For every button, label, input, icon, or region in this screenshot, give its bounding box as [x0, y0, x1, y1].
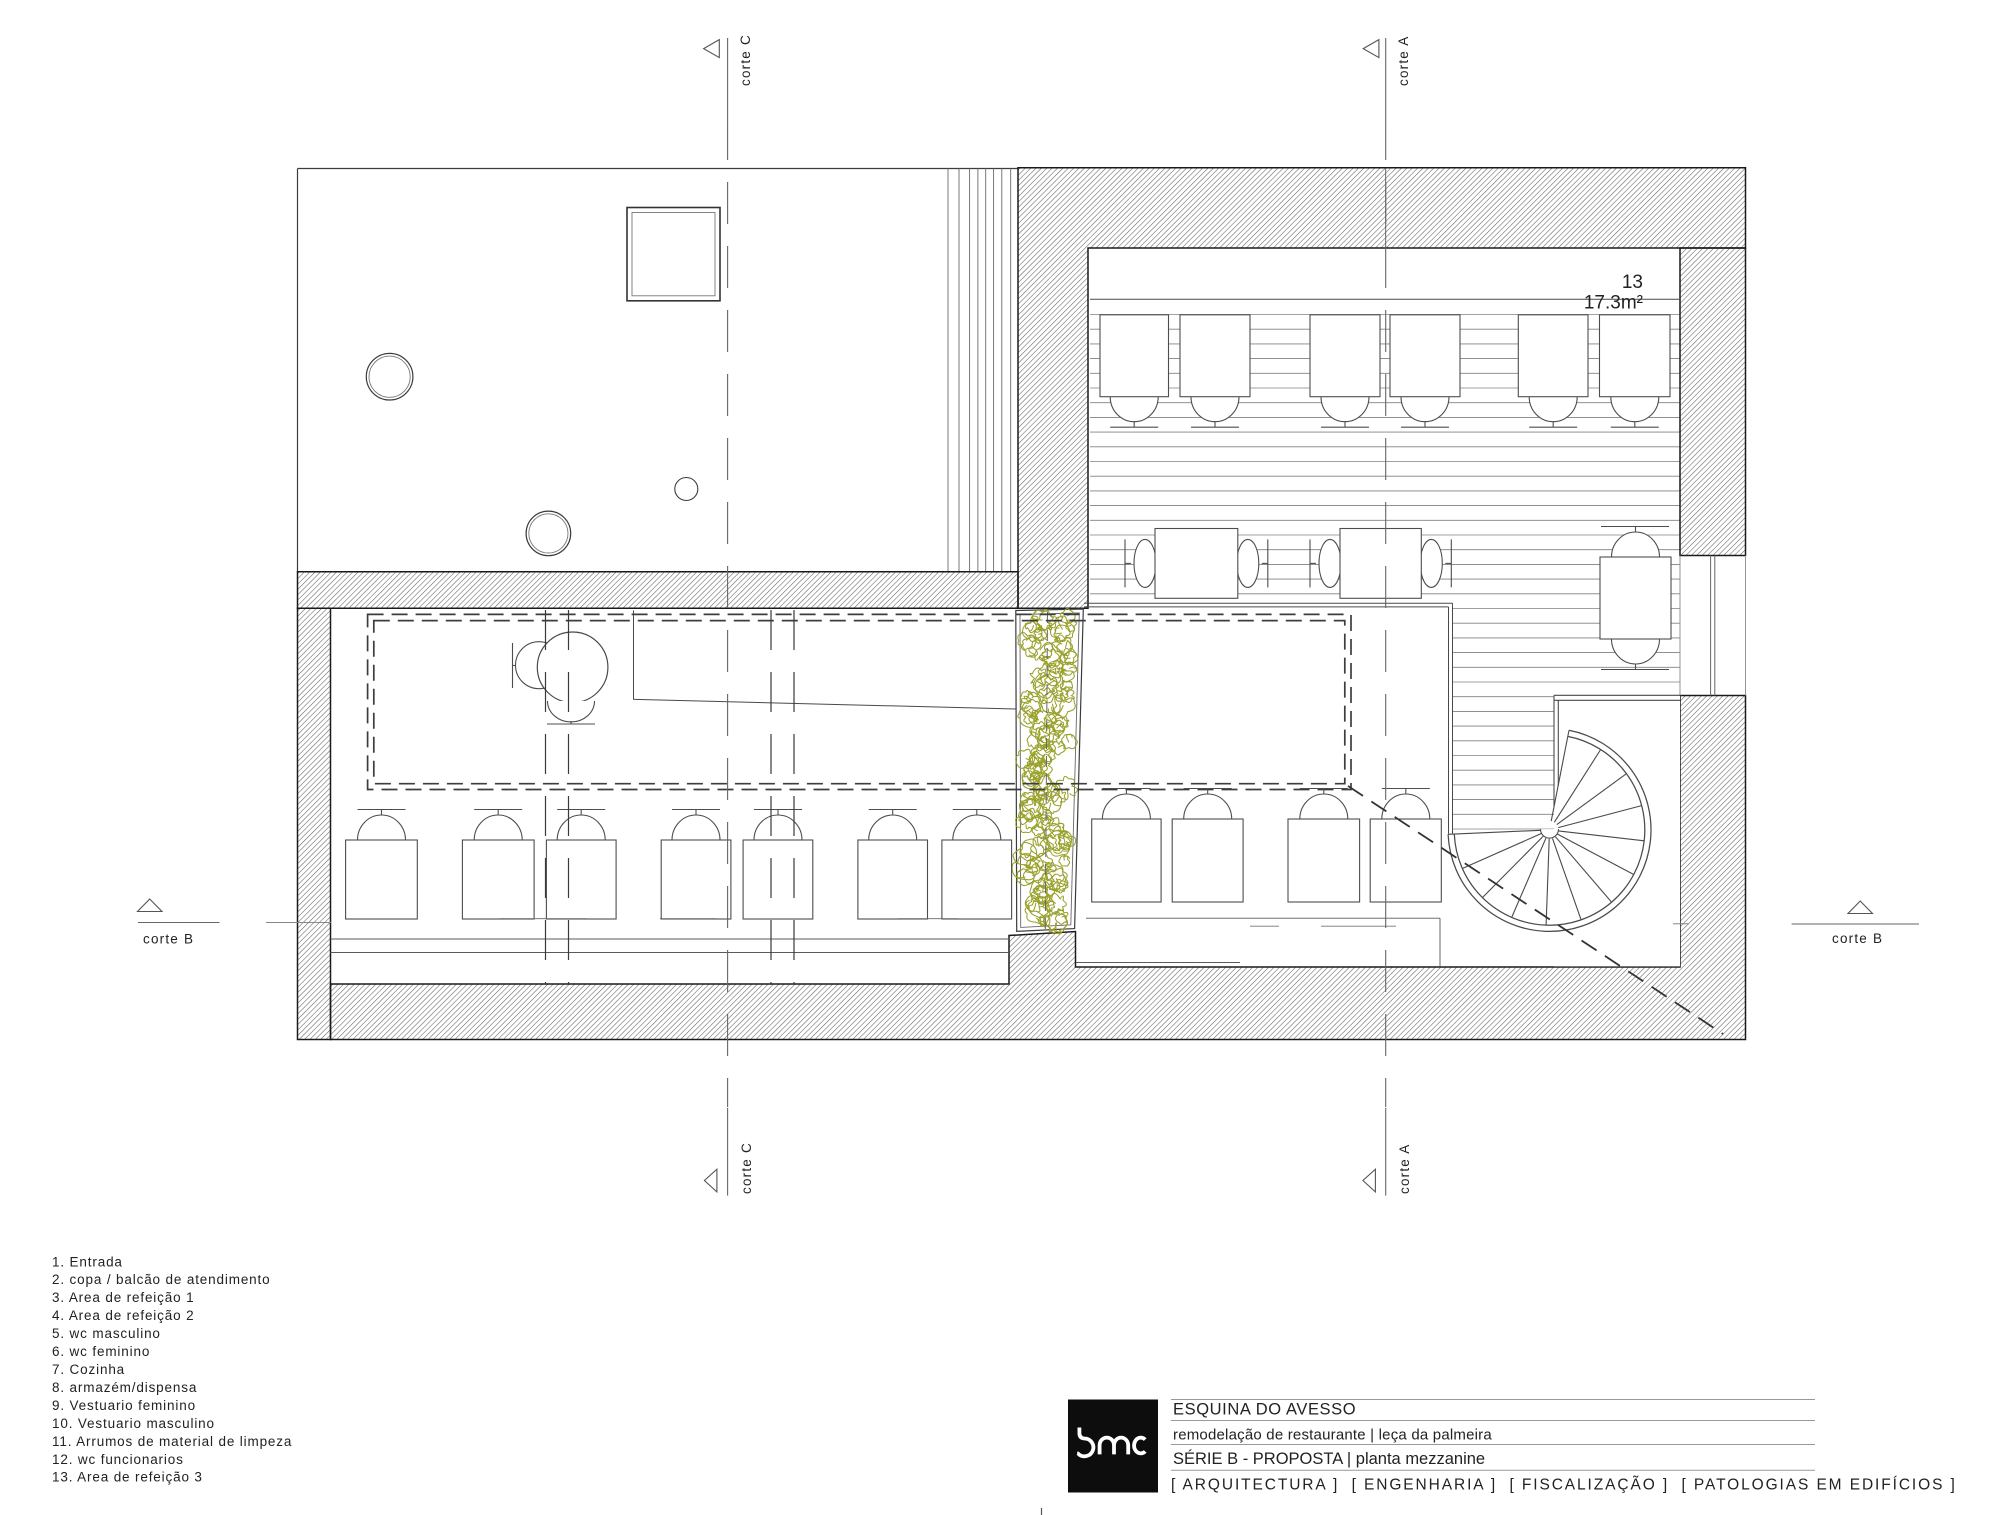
svg-text:7. Cozinha: 7. Cozinha	[52, 1362, 125, 1377]
svg-text:remodelação de restaurante | l: remodelação de restaurante | leça da pal…	[1173, 1427, 1492, 1444]
svg-text:8. armazém/dispensa: 8. armazém/dispensa	[52, 1380, 197, 1395]
svg-text:corte A: corte A	[1396, 36, 1411, 86]
svg-text:corte B: corte B	[143, 932, 194, 947]
svg-text:corte B: corte B	[1832, 931, 1883, 946]
svg-text:4. Area de refeição 2: 4. Area de refeição 2	[52, 1308, 194, 1323]
svg-text:1. Entrada: 1. Entrada	[52, 1254, 123, 1269]
svg-text:9. Vestuario feminino: 9. Vestuario feminino	[52, 1398, 196, 1413]
svg-text:[ ARQUITECTURA ] [ ENGENHARIA: [ ARQUITECTURA ] [ ENGENHARIA ] [ FISCAL…	[1171, 1477, 1957, 1494]
svg-text:13. Area de refeição 3: 13. Area de refeição 3	[52, 1470, 203, 1485]
svg-text:12. wc funcionarios: 12. wc funcionarios	[52, 1452, 184, 1467]
svg-text:6. wc feminino: 6. wc feminino	[52, 1344, 150, 1359]
svg-text:corte C: corte C	[738, 34, 753, 86]
svg-text:5. wc masculino: 5. wc masculino	[52, 1326, 161, 1341]
svg-text:3. Area de refeição 1: 3. Area de refeição 1	[52, 1290, 194, 1305]
svg-text:2. copa / balcão de atendiment: 2. copa / balcão de atendimento	[52, 1272, 271, 1287]
svg-text:17.3m²: 17.3m²	[1584, 293, 1643, 314]
svg-text:ESQUINA DO AVESSO: ESQUINA DO AVESSO	[1173, 1401, 1356, 1419]
svg-text:11. Arrumos de material de lim: 11. Arrumos de material de limpeza	[52, 1434, 292, 1449]
svg-text:corte A: corte A	[1397, 1144, 1412, 1194]
svg-text:corte C: corte C	[739, 1142, 754, 1194]
svg-text:10. Vestuario masculino: 10. Vestuario masculino	[52, 1416, 215, 1431]
svg-text:SÉRIE B - PROPOSTA | planta me: SÉRIE B - PROPOSTA | planta mezzanine	[1173, 1449, 1485, 1468]
svg-text:13: 13	[1622, 272, 1643, 293]
